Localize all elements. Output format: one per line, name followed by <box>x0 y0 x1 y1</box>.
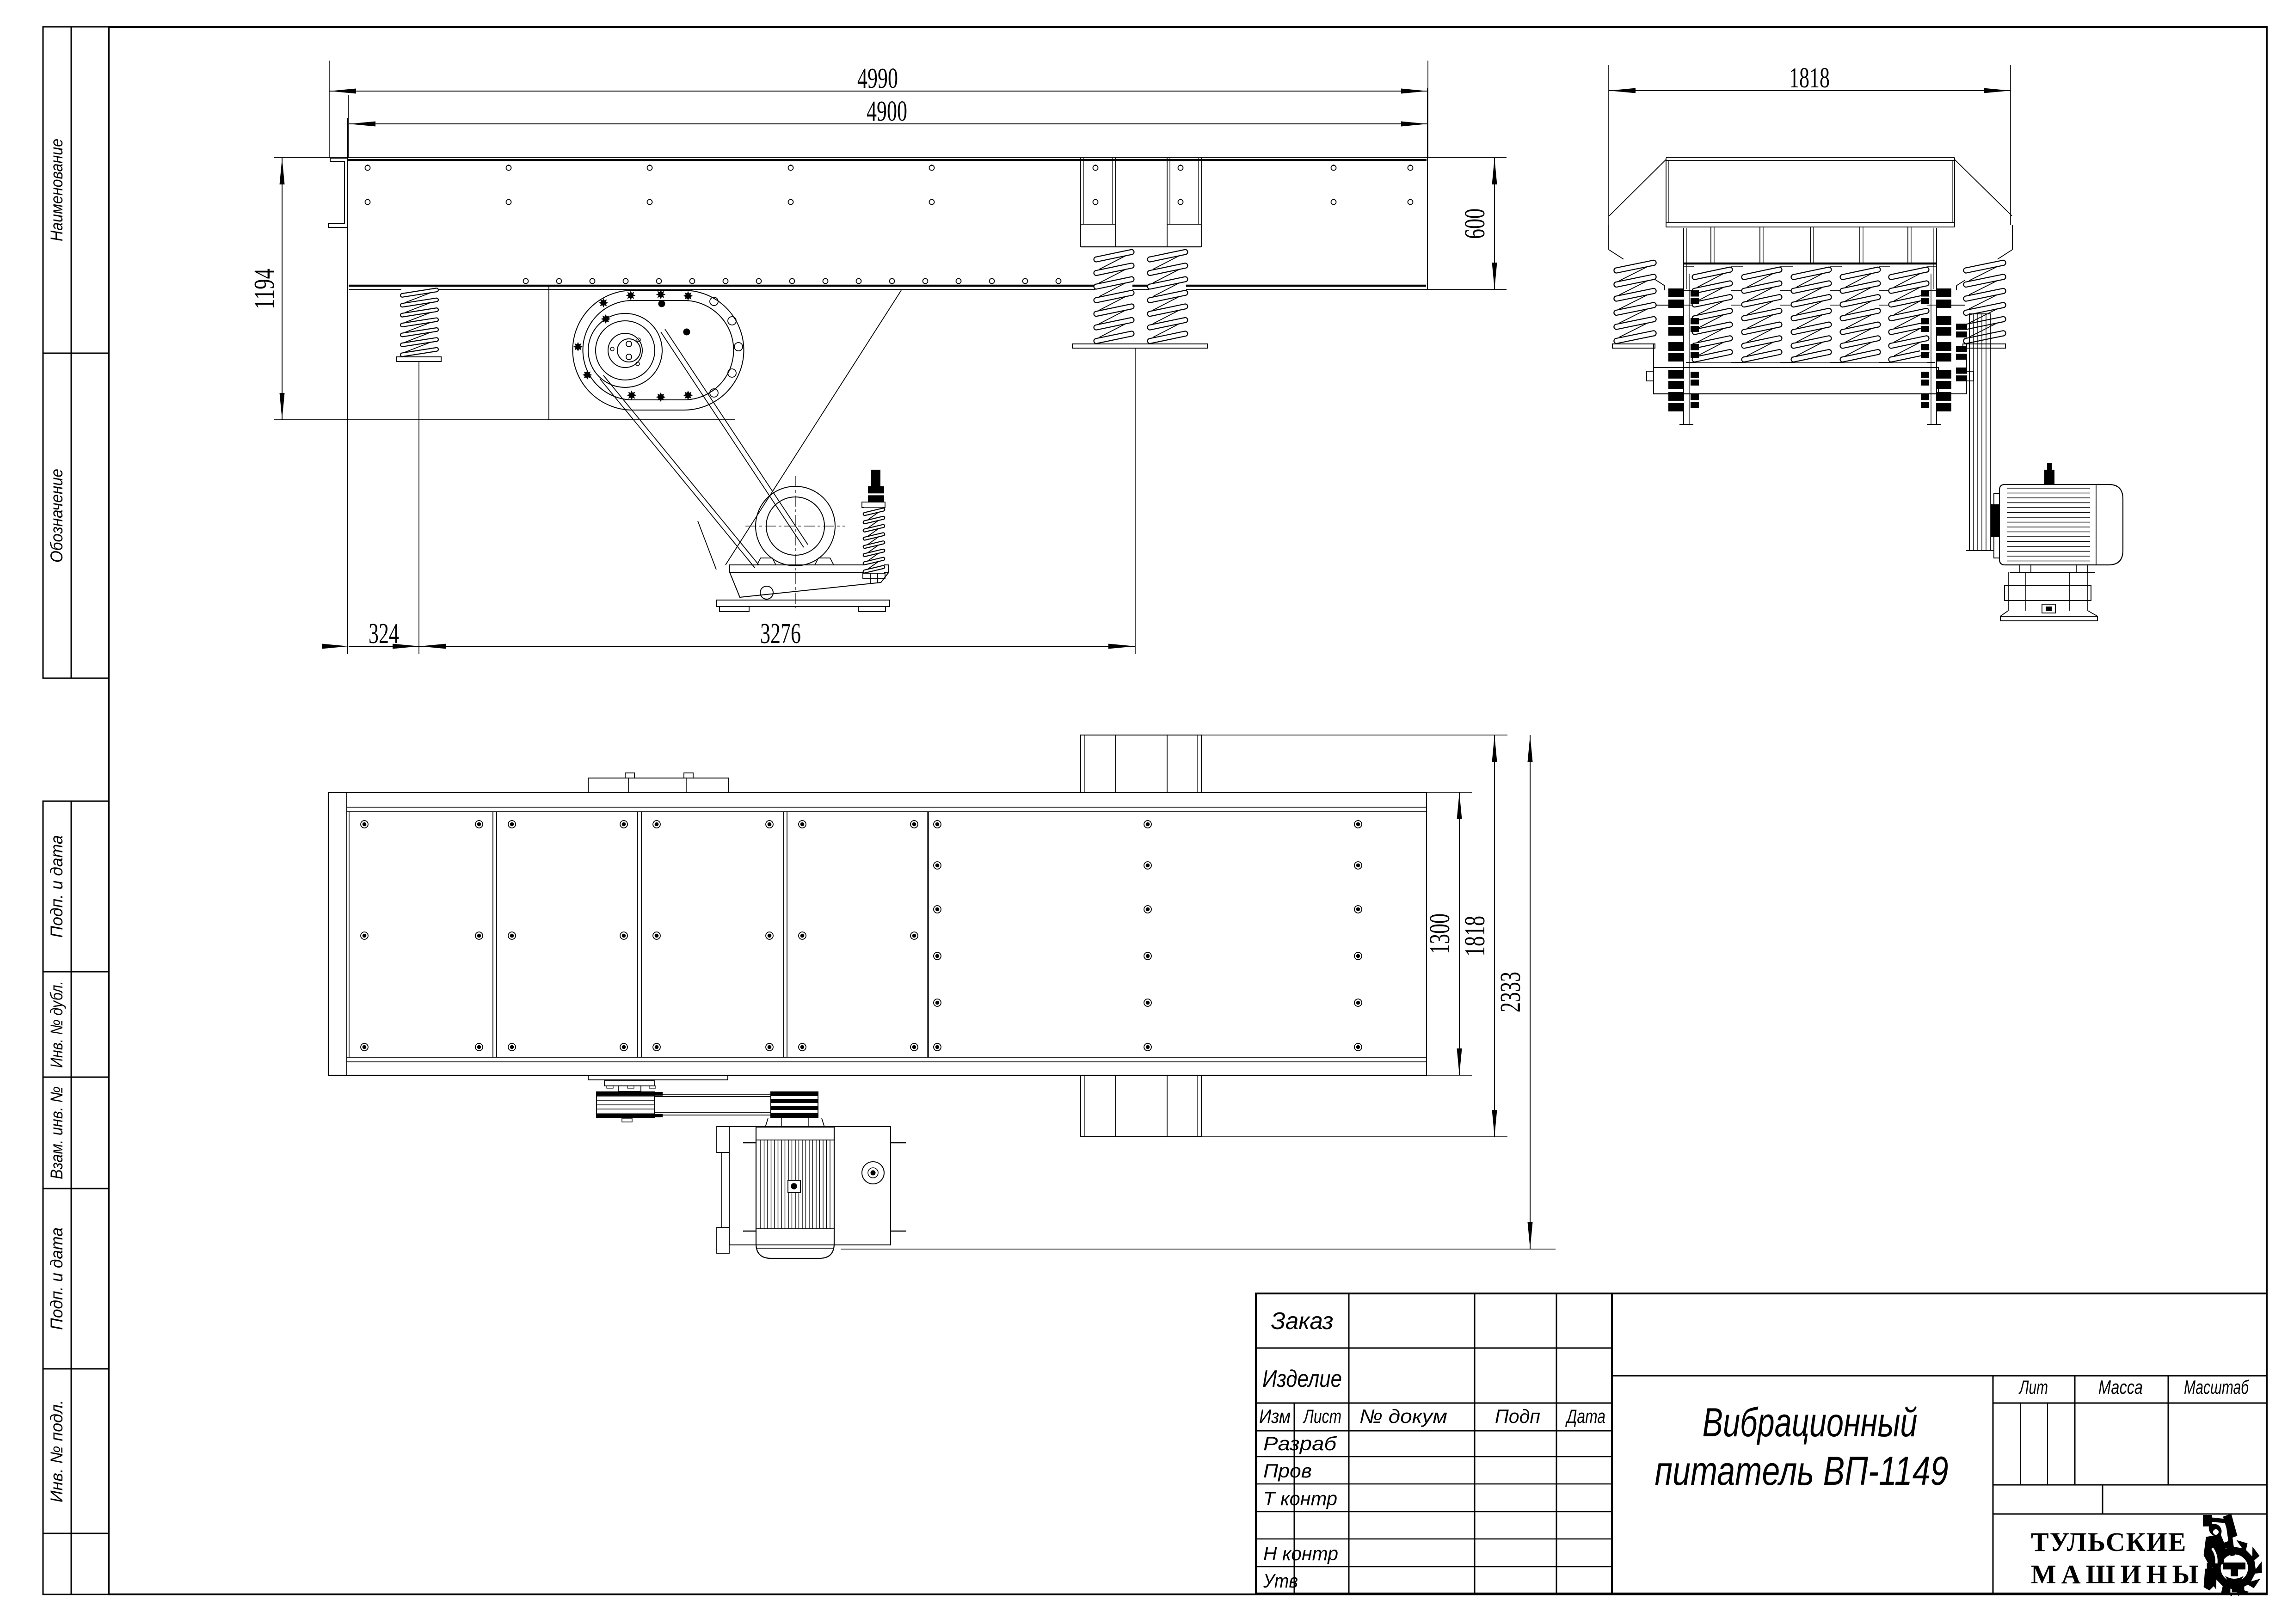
svg-text:1194: 1194 <box>249 269 280 309</box>
svg-text:600: 600 <box>1459 208 1491 239</box>
svg-text:1818: 1818 <box>1459 916 1491 956</box>
svg-text:Вибрационный: Вибрационный <box>1703 1399 1918 1445</box>
svg-text:Заказ: Заказ <box>1271 1308 1334 1335</box>
svg-text:4990: 4990 <box>857 63 898 94</box>
svg-text:1818: 1818 <box>1789 62 1830 94</box>
svg-text:Обозначение: Обозначение <box>47 469 66 563</box>
svg-text:4900: 4900 <box>867 96 907 127</box>
svg-text:Масса: Масса <box>2098 1376 2143 1398</box>
svg-text:Подп. и дата: Подп. и дата <box>47 835 66 938</box>
svg-text:Инв. № дубл.: Инв. № дубл. <box>47 981 66 1068</box>
svg-text:МАШИНЫ: МАШИНЫ <box>2031 1559 2204 1589</box>
svg-text:Инв. № подл.: Инв. № подл. <box>47 1400 66 1502</box>
svg-text:3276: 3276 <box>760 618 801 650</box>
svg-text:Дата: Дата <box>1565 1405 1605 1427</box>
svg-text:Т контр: Т контр <box>1263 1488 1337 1509</box>
svg-text:Масштаб: Масштаб <box>2184 1376 2249 1398</box>
svg-text:Утв: Утв <box>1263 1570 1298 1592</box>
svg-text:324: 324 <box>369 618 399 650</box>
svg-text:№ докум: № докум <box>1359 1405 1447 1427</box>
svg-text:питатель ВП-1149: питатель ВП-1149 <box>1655 1448 1949 1494</box>
svg-text:Взам. инв. №: Взам. инв. № <box>47 1086 66 1179</box>
svg-text:Изм: Изм <box>1259 1405 1291 1427</box>
svg-text:Н контр: Н контр <box>1263 1543 1338 1564</box>
svg-text:ТУЛЬСКИЕ: ТУЛЬСКИЕ <box>2031 1527 2187 1557</box>
svg-text:Пров: Пров <box>1263 1460 1312 1482</box>
svg-text:Разраб: Разраб <box>1263 1433 1337 1454</box>
svg-text:Изделие: Изделие <box>1262 1366 1342 1392</box>
svg-text:2333: 2333 <box>1495 972 1526 1012</box>
svg-text:1300: 1300 <box>1424 913 1456 954</box>
svg-text:Подп. и дата: Подп. и дата <box>47 1227 66 1330</box>
svg-text:Лист: Лист <box>1303 1405 1341 1427</box>
svg-text:Подп: Подп <box>1495 1405 1540 1427</box>
svg-text:Наименование: Наименование <box>47 139 66 241</box>
svg-text:Лит: Лит <box>2018 1376 2048 1398</box>
